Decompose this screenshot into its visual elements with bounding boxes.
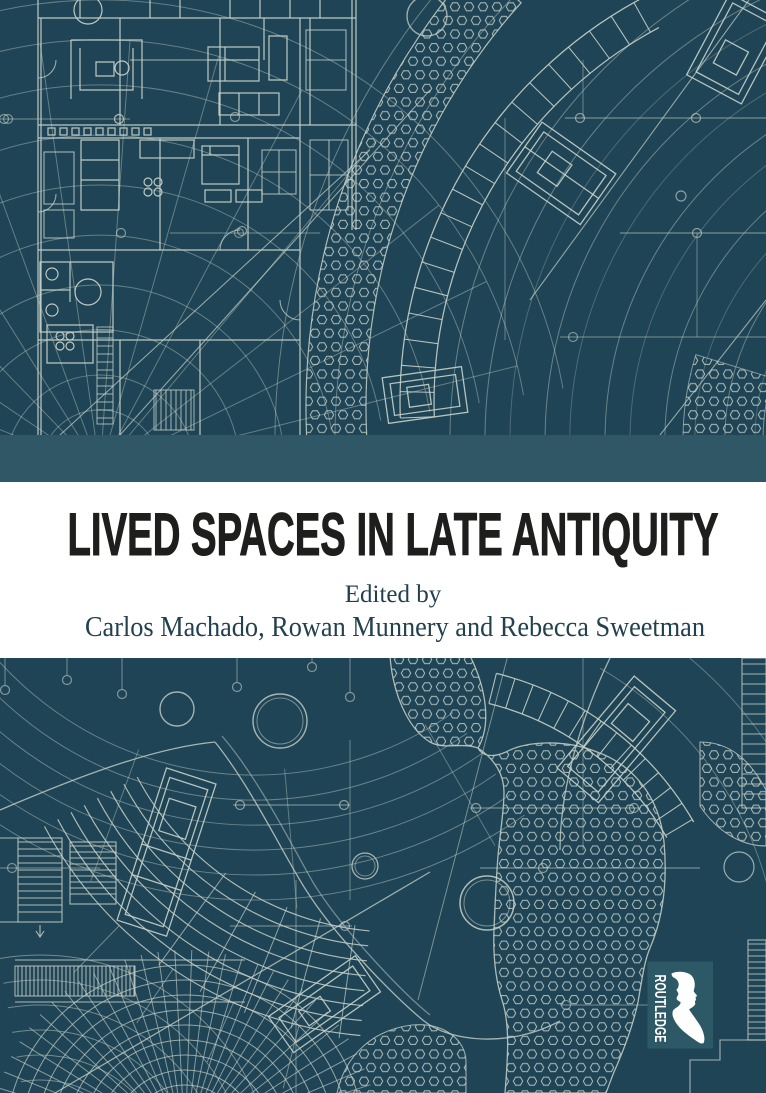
svg-text:Edited by: Edited by [345, 581, 442, 608]
svg-text:ROUTLEDGE: ROUTLEDGE [651, 975, 668, 1043]
svg-text:LIVED SPACES IN LATE ANTIQUITY: LIVED SPACES IN LATE ANTIQUITY [68, 501, 719, 568]
svg-text:Carlos Machado, Rowan Munnery: Carlos Machado, Rowan Munnery and Rebecc… [85, 612, 705, 643]
